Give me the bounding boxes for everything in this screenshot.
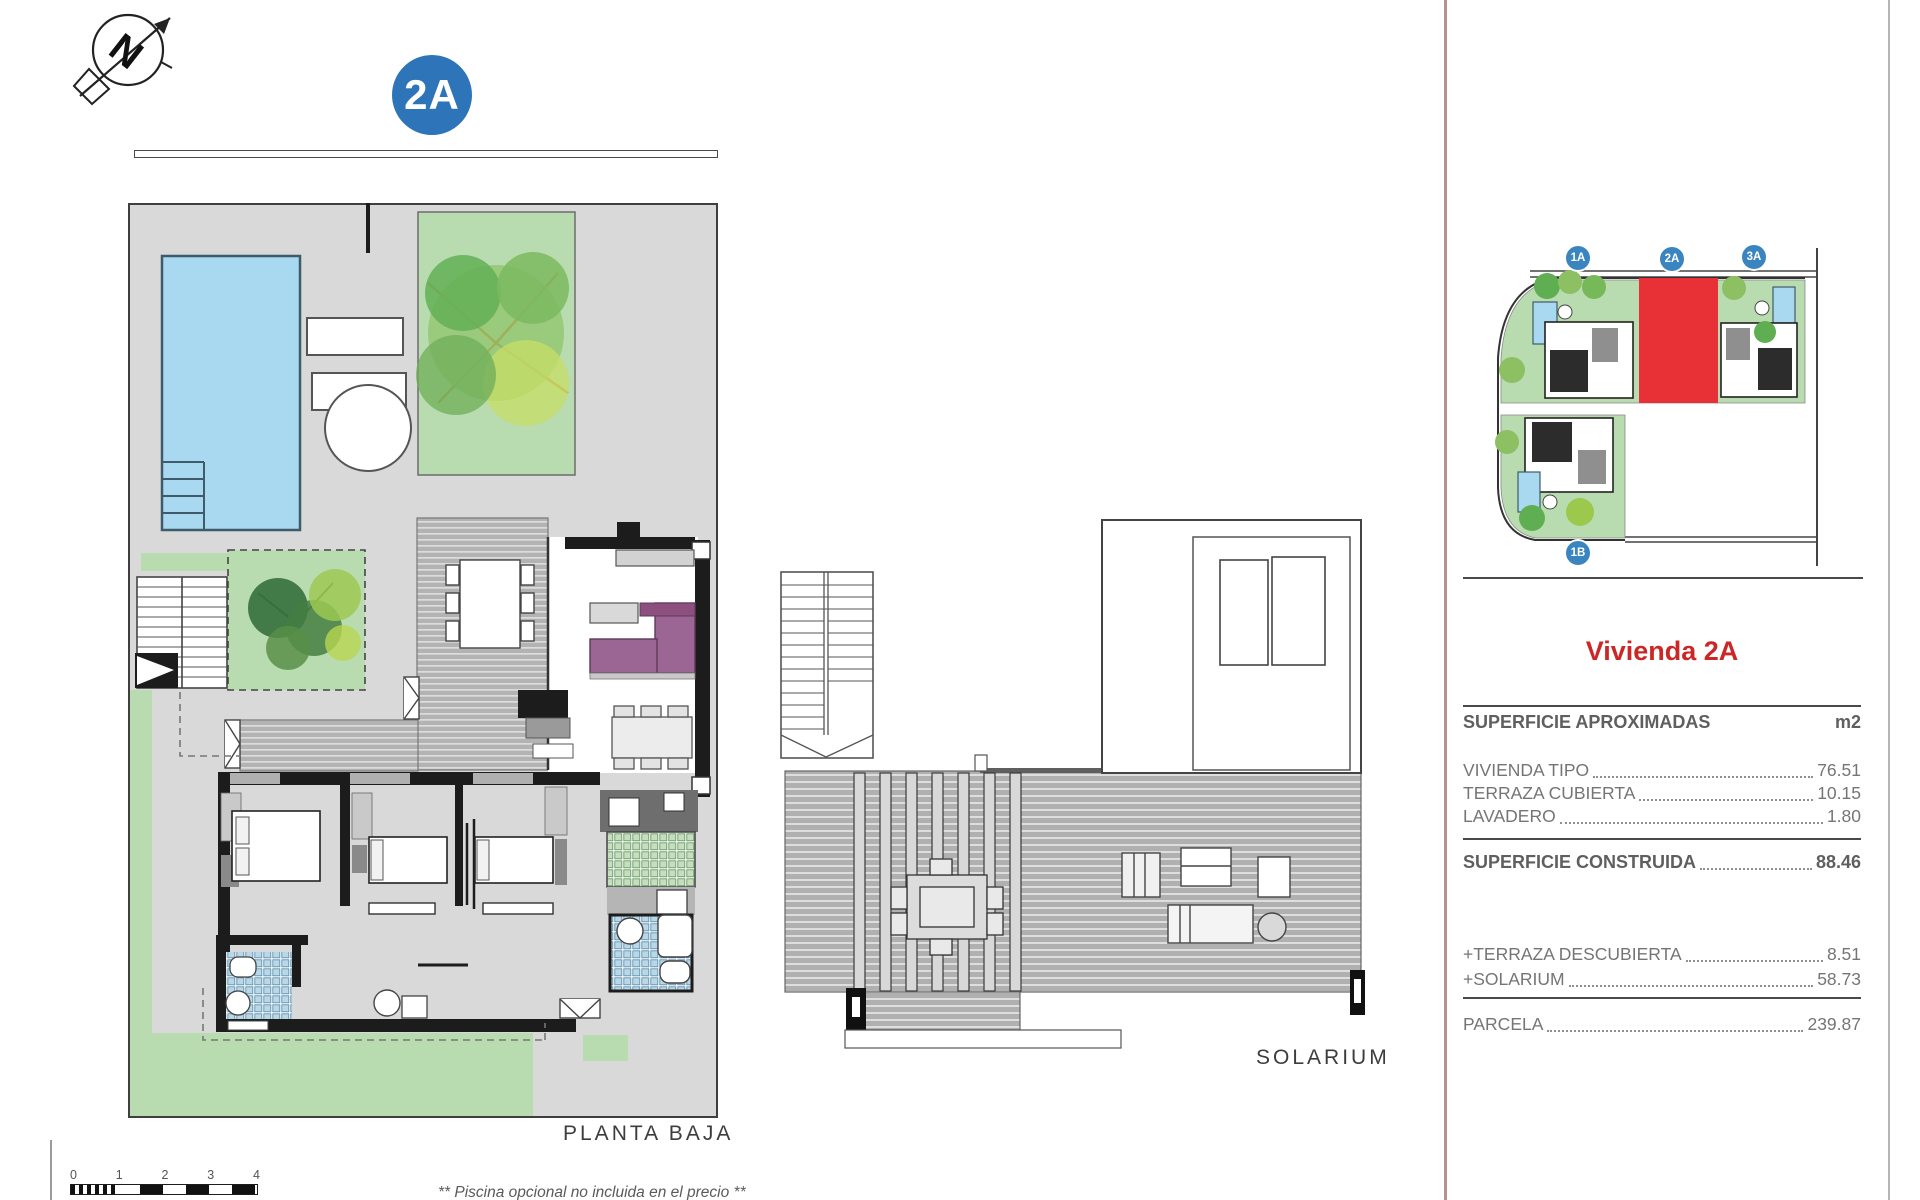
row-label: +SOLARIUM	[1463, 969, 1565, 990]
planta-baja-plan	[128, 203, 718, 1118]
dot-leader	[1639, 799, 1813, 801]
solarium-stairs	[781, 572, 873, 758]
north-arrow-icon: N	[62, 6, 192, 116]
dot-leader	[1700, 868, 1812, 870]
solarium-label: SOLARIUM	[1256, 1046, 1390, 1070]
garden-top-right	[416, 212, 575, 475]
bathroom-main	[610, 915, 692, 991]
scale-strip	[70, 1184, 258, 1195]
sidebar-title: Vivienda 2A	[1463, 636, 1861, 667]
wall-stub	[366, 203, 370, 253]
table-row: +SOLARIUM 58.73	[1463, 969, 1861, 990]
scale-bar: 0 1 2 3 4	[70, 1168, 260, 1195]
dot-leader	[1569, 985, 1814, 987]
outdoor-dining-table	[446, 560, 534, 648]
table-rule	[1463, 705, 1861, 707]
row-value: 10.15	[1817, 783, 1861, 804]
disclaimer-text: ** Piscina opcional no incluida en el pr…	[438, 1184, 746, 1200]
row-label: +TERRAZA DESCUBIERTA	[1463, 944, 1682, 965]
tv-table	[590, 603, 638, 623]
scale-tick: 1	[116, 1168, 123, 1182]
scale-tick: 2	[162, 1168, 169, 1182]
scale-tick: 0	[70, 1168, 77, 1182]
site-badge-1A: 1A	[1566, 246, 1590, 270]
planta-baja-label: PLANTA BAJA	[563, 1122, 733, 1146]
row-value: 8.51	[1827, 944, 1861, 965]
dot-leader	[1593, 776, 1813, 778]
table-header: SUPERFICIE APROXIMADAS m2	[1463, 712, 1861, 733]
scale-tick: 4	[253, 1168, 260, 1182]
dining-table	[612, 706, 692, 769]
planter-box	[307, 318, 403, 355]
table-row: TERRAZA CUBIERTA 10.15	[1463, 783, 1861, 804]
row-value: 1.80	[1827, 806, 1861, 827]
table-header-unit: m2	[1835, 712, 1861, 733]
site-badge-2A: 2A	[1660, 247, 1684, 271]
table-rule	[1463, 838, 1861, 840]
deck-step	[850, 992, 1020, 1030]
unit-badge: 2A	[392, 55, 472, 135]
row-label: PARCELA	[1463, 1014, 1543, 1035]
dot-leader	[1560, 822, 1823, 824]
table-rule	[1463, 997, 1861, 999]
scale-tick: 3	[207, 1168, 214, 1182]
round-table	[325, 385, 411, 471]
sun-lounger	[1168, 905, 1253, 943]
garden-bottom-band	[130, 1033, 533, 1116]
table-parcel-row: PARCELA 239.87	[1463, 1014, 1861, 1035]
exterior-stairs	[135, 577, 227, 688]
lot-2A-highlight	[1639, 278, 1718, 403]
scale-ticks: 0 1 2 3 4	[70, 1168, 260, 1182]
row-value: 76.51	[1817, 760, 1861, 781]
red-divider-line	[1444, 0, 1447, 1200]
row-value: 58.73	[1817, 969, 1861, 990]
swimming-pool	[162, 256, 300, 530]
hall	[607, 887, 695, 915]
side-table	[374, 990, 400, 1016]
sidebar-top-rule	[1463, 577, 1863, 579]
stair-bulkhead	[1102, 520, 1361, 773]
row-value: 88.46	[1816, 852, 1861, 873]
row-label: LAVADERO	[1463, 806, 1556, 827]
title-underline	[134, 150, 718, 158]
site-badge-3A: 3A	[1742, 245, 1766, 269]
row-label: SUPERFICIE CONSTRUIDA	[1463, 852, 1696, 873]
solarium-plan	[780, 515, 1376, 1061]
garden-left-column	[130, 690, 152, 1036]
covered-terrace	[240, 720, 418, 771]
plot-edge	[845, 1030, 1121, 1048]
kitchen-counter	[600, 790, 698, 832]
site-plan	[1490, 240, 1822, 572]
table-row: VIVIENDA TIPO 76.51	[1463, 760, 1861, 781]
page-border-line	[1888, 0, 1890, 1200]
courtyard-planter	[228, 550, 365, 690]
row-value: 239.87	[1807, 1014, 1861, 1035]
page-border-fragment	[50, 1140, 52, 1200]
table-total-row: SUPERFICIE CONSTRUIDA 88.46	[1463, 852, 1861, 873]
sideboard	[616, 550, 694, 566]
stool	[402, 996, 427, 1018]
site-badge-1B: 1B	[1566, 541, 1590, 565]
garden-patch	[583, 1035, 628, 1061]
round-side-table	[1258, 913, 1286, 941]
row-label: TERRAZA CUBIERTA	[1463, 783, 1635, 804]
row-label: VIVIENDA TIPO	[1463, 760, 1589, 781]
dot-leader	[1547, 1030, 1803, 1032]
laundry-room	[607, 832, 695, 887]
page: N 2A	[0, 0, 1920, 1200]
table-header-label: SUPERFICIE APROXIMADAS	[1463, 712, 1710, 733]
table-row: +TERRAZA DESCUBIERTA 8.51	[1463, 944, 1861, 965]
dot-leader	[1686, 960, 1823, 962]
table-row: LAVADERO 1.80	[1463, 806, 1861, 827]
